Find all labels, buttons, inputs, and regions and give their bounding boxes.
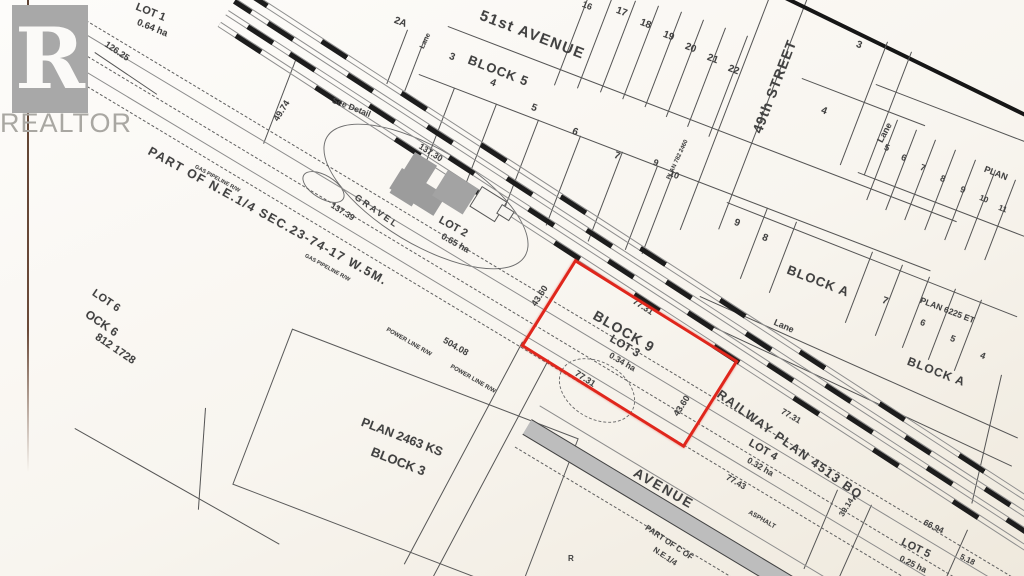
- plan-right: PLAN: [983, 165, 1009, 182]
- power-line-rw-2: POWER LINE R/W: [449, 364, 496, 395]
- block-a-label-2: BLOCK A: [906, 355, 967, 388]
- lot-number: 7: [919, 163, 927, 173]
- lot-number: 4: [819, 106, 828, 117]
- plan-6225: PLAN 6225 ET: [919, 296, 976, 325]
- lot6-plan: 812 1728: [93, 332, 137, 367]
- dim-39-14: 39.14: [838, 497, 855, 518]
- dim-137-39: 137.39: [329, 201, 356, 222]
- lot-number: 4: [488, 78, 497, 89]
- lane-label-mid: Lane: [772, 318, 795, 335]
- lot-number: 3: [854, 40, 863, 51]
- gravel-label: GRAVEL: [353, 193, 401, 230]
- asphalt-label: ASPHALT: [747, 510, 776, 531]
- lot-number: 4: [979, 351, 987, 361]
- map-labels-layer: LOT 10.64 ha126.2549.7451st AVENUE2ALane…: [0, 0, 1024, 576]
- lot-number: 7: [612, 151, 621, 162]
- lot-number: 5: [883, 143, 891, 153]
- dim-77-31-lot4: 77.31: [780, 407, 803, 425]
- lane-label-top: Lane: [419, 32, 432, 50]
- lot-number: 8: [939, 174, 947, 184]
- street-49th: 49th STREET: [750, 38, 799, 135]
- lane-label-right: Lane: [876, 121, 894, 144]
- lot-number: 5: [949, 334, 957, 344]
- lot-number: 7: [880, 296, 889, 307]
- lot-number: 9: [732, 218, 741, 229]
- see-detail: See Detail: [331, 96, 372, 118]
- dim-77-43: 77.43: [725, 473, 748, 491]
- lot-number: 20: [683, 42, 697, 55]
- block5-label: BLOCK 5: [466, 53, 530, 88]
- realtor-wordmark: REALTOR: [0, 108, 132, 139]
- block-a-label: BLOCK A: [785, 263, 851, 299]
- lot-number: 6: [570, 127, 579, 138]
- lot-number: 11: [997, 204, 1008, 215]
- power-line-rw: POWER LINE R/W: [385, 327, 432, 358]
- plat-map: LOT 10.64 ha126.2549.7451st AVENUE2ALane…: [0, 0, 1024, 576]
- lot-number: 10: [978, 194, 989, 205]
- dim-137-30: 137.30: [417, 142, 444, 163]
- realtor-logo: R: [12, 5, 88, 113]
- r-label: R: [568, 555, 574, 563]
- lot-number: 9: [959, 185, 967, 195]
- dim-5-18: 5.18: [958, 553, 976, 567]
- lot-number: 19: [661, 30, 675, 43]
- lot-number: 3: [447, 52, 456, 63]
- lot-number: 6: [900, 153, 908, 163]
- realtor-logo-letter: R: [15, 17, 85, 101]
- dim-66-94: 66.94: [922, 518, 945, 535]
- lot-number: 6: [919, 318, 927, 328]
- lot-number: 21: [705, 53, 719, 66]
- lot-number: 9: [652, 158, 660, 168]
- lot-number: 8: [760, 233, 769, 244]
- lot-number: 16: [581, 0, 594, 12]
- avenue-label: AVENUE: [631, 466, 696, 511]
- lot-number: 18: [638, 18, 652, 31]
- dim-49-74: 49.74: [272, 99, 292, 123]
- dim-126-25: 126.25: [103, 40, 131, 63]
- dim-504-08: 504.08: [442, 336, 470, 358]
- lot-number: 5: [529, 103, 538, 114]
- street-51st-avenue: 51st AVENUE: [478, 8, 588, 62]
- lot-number: 22: [726, 64, 740, 77]
- lot-number: 17: [614, 6, 628, 19]
- lot-2a: 2A: [392, 16, 408, 30]
